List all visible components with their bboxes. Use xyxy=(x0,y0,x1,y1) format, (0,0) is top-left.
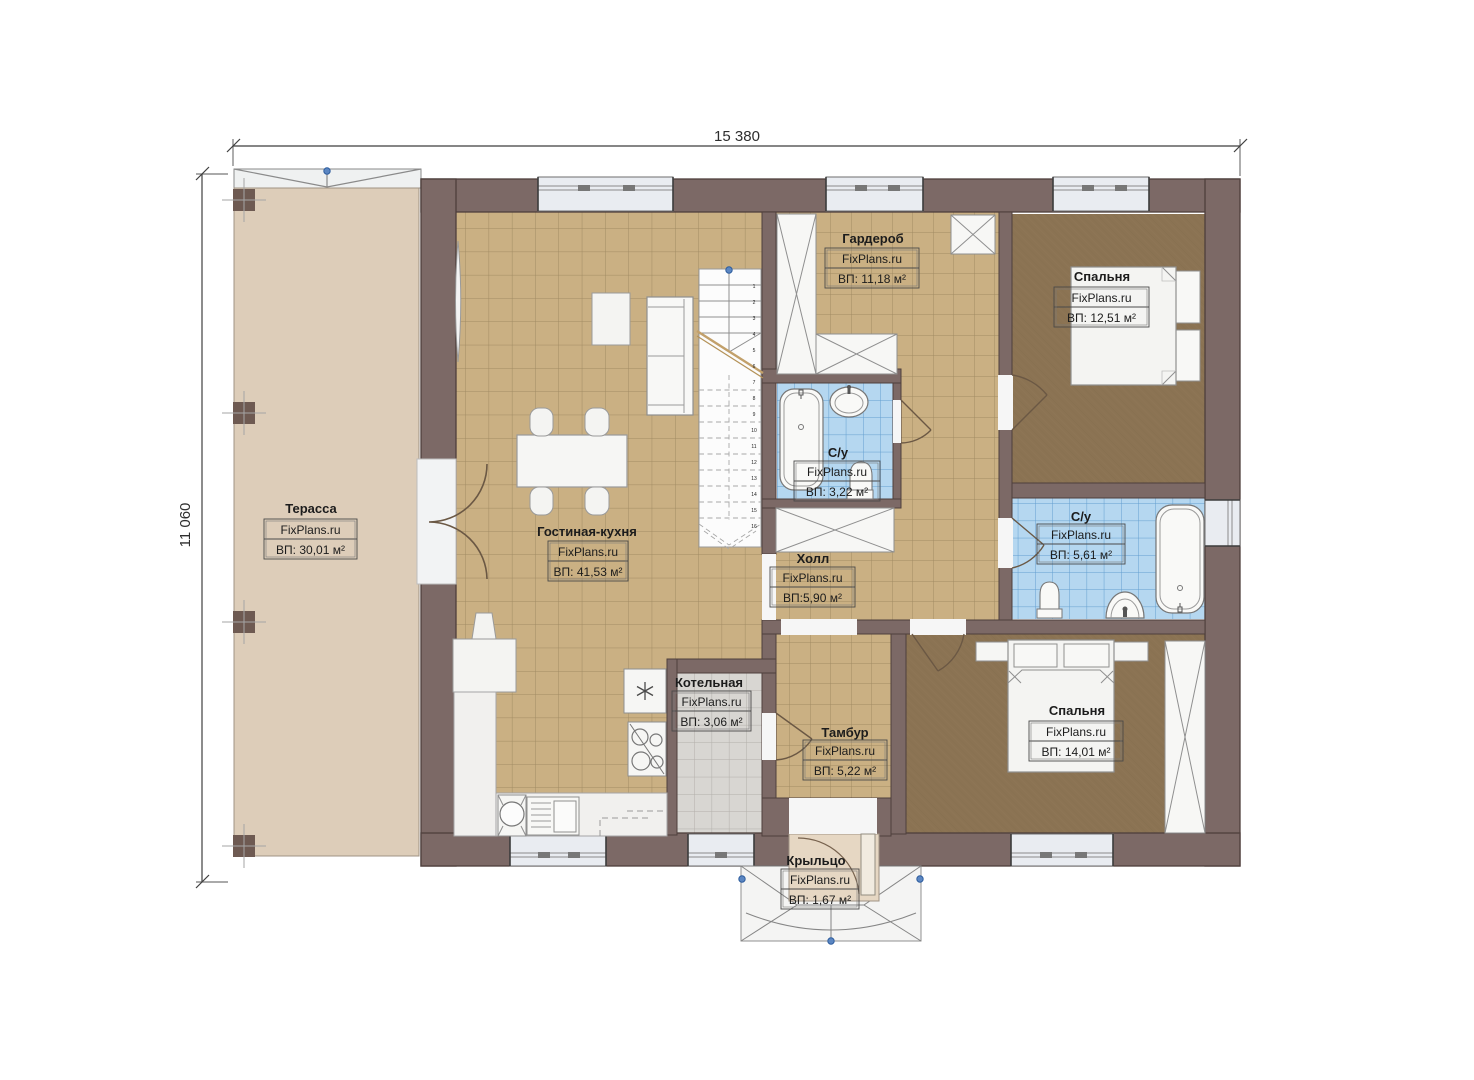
svg-text:3: 3 xyxy=(753,316,756,322)
svg-text:FixPlans.ru: FixPlans.ru xyxy=(1046,725,1106,739)
svg-text:ВП: 30,01 м²: ВП: 30,01 м² xyxy=(276,543,345,557)
svg-text:Гардероб: Гардероб xyxy=(842,231,903,246)
svg-text:FixPlans.ru: FixPlans.ru xyxy=(280,523,340,537)
svg-text:15: 15 xyxy=(751,508,757,514)
svg-text:FixPlans.ru: FixPlans.ru xyxy=(807,465,867,479)
svg-text:Холл: Холл xyxy=(797,551,830,566)
svg-text:ВП: 3,22 м²: ВП: 3,22 м² xyxy=(806,485,868,499)
svg-text:ВП: 5,61 м²: ВП: 5,61 м² xyxy=(1050,548,1112,562)
svg-text:ВП: 1,67 м²: ВП: 1,67 м² xyxy=(789,893,851,907)
svg-text:8: 8 xyxy=(753,396,756,402)
svg-text:Спальня: Спальня xyxy=(1074,269,1130,284)
svg-text:16: 16 xyxy=(751,524,757,530)
svg-text:FixPlans.ru: FixPlans.ru xyxy=(790,873,850,887)
svg-text:FixPlans.ru: FixPlans.ru xyxy=(1051,528,1111,542)
svg-text:Котельная: Котельная xyxy=(675,675,743,690)
svg-text:FixPlans.ru: FixPlans.ru xyxy=(782,571,842,585)
svg-text:FixPlans.ru: FixPlans.ru xyxy=(815,744,875,758)
svg-text:С/у: С/у xyxy=(828,445,849,460)
svg-text:ВП: 11,18 м²: ВП: 11,18 м² xyxy=(838,272,906,286)
svg-text:1: 1 xyxy=(753,284,756,290)
svg-text:12: 12 xyxy=(751,460,757,466)
svg-text:Гостиная-кухня: Гостиная-кухня xyxy=(537,524,637,539)
svg-text:ВП: 3,06 м²: ВП: 3,06 м² xyxy=(680,715,742,729)
svg-text:ВП: 5,22 м²: ВП: 5,22 м² xyxy=(814,764,876,778)
svg-text:ВП: 12,51 м²: ВП: 12,51 м² xyxy=(1067,311,1136,325)
svg-text:FixPlans.ru: FixPlans.ru xyxy=(558,545,618,559)
svg-text:6: 6 xyxy=(753,364,756,370)
svg-text:10: 10 xyxy=(751,428,757,434)
svg-text:Спальня: Спальня xyxy=(1049,703,1105,718)
svg-text:Терасса: Терасса xyxy=(285,501,337,516)
svg-text:5: 5 xyxy=(753,348,756,354)
svg-text:Крыльцо: Крыльцо xyxy=(786,853,845,868)
svg-text:ВП: 14,01 м²: ВП: 14,01 м² xyxy=(1042,745,1111,759)
svg-text:14: 14 xyxy=(751,492,757,498)
svg-text:FixPlans.ru: FixPlans.ru xyxy=(681,695,741,709)
svg-text:2: 2 xyxy=(753,300,756,306)
svg-text:11: 11 xyxy=(751,444,756,450)
svg-text:13: 13 xyxy=(751,476,757,482)
svg-text:FixPlans.ru: FixPlans.ru xyxy=(1071,291,1131,305)
svg-text:ВП:5,90 м²: ВП:5,90 м² xyxy=(783,591,842,605)
svg-text:ВП: 41,53 м²: ВП: 41,53 м² xyxy=(554,565,623,579)
svg-text:С/у: С/у xyxy=(1071,509,1092,524)
svg-text:4: 4 xyxy=(753,332,756,338)
svg-text:Тамбур: Тамбур xyxy=(821,725,868,740)
svg-text:FixPlans.ru: FixPlans.ru xyxy=(842,252,902,266)
svg-text:15 380: 15 380 xyxy=(714,128,760,145)
svg-text:9: 9 xyxy=(753,412,756,418)
svg-text:11 060: 11 060 xyxy=(177,503,194,548)
svg-text:7: 7 xyxy=(753,380,756,386)
